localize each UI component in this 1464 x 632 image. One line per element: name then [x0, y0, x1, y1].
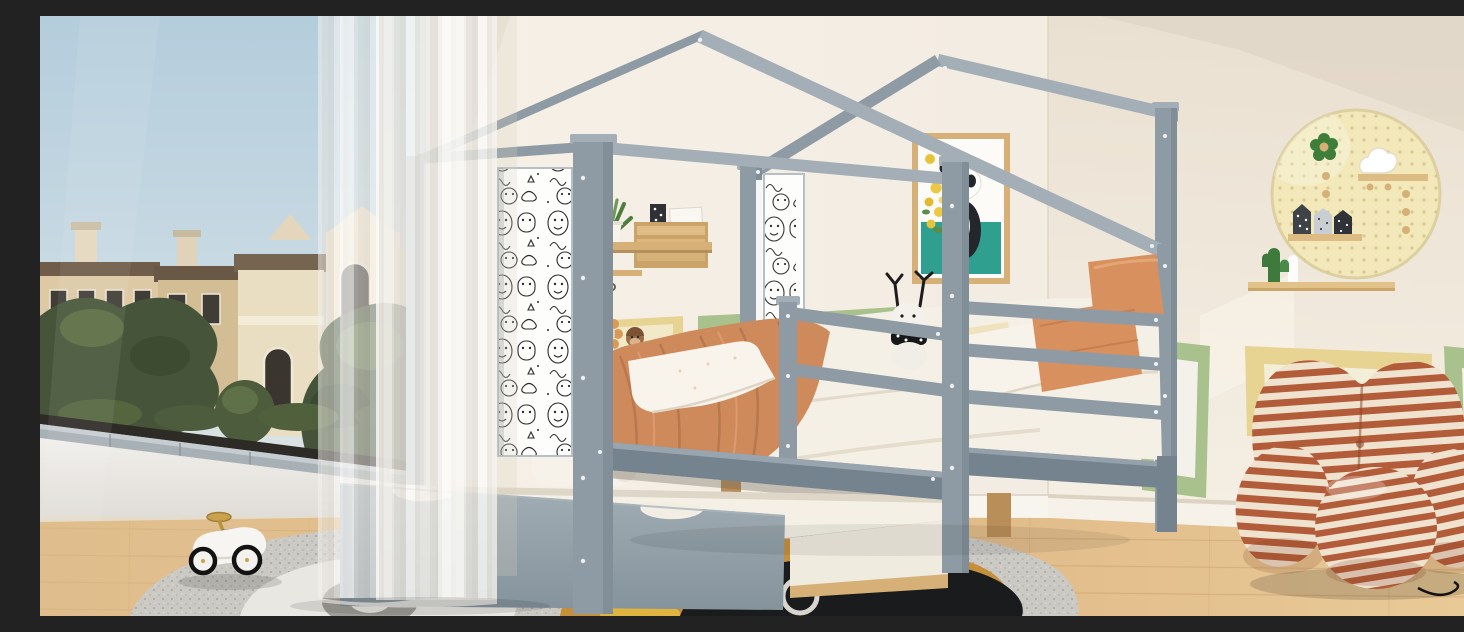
beam-end-cap: [1157, 244, 1171, 262]
chair-button: [1356, 440, 1364, 448]
curtain: [290, 16, 550, 615]
roof: [234, 254, 328, 272]
curtain-highlight: [340, 16, 354, 598]
bed-floor-shadow: [630, 524, 1130, 556]
bedroom-scene: Kids bedroom with gray wooden house-fram…: [40, 16, 1464, 616]
pegboard-shelf-lower: [1288, 234, 1362, 241]
bedroom-photo: Product photo of a gray house-shaped twi…: [40, 16, 1464, 616]
chimney-cap: [173, 230, 201, 237]
chimney: [177, 235, 197, 271]
curtain-wall-shadow: [497, 16, 517, 576]
curtain-main: [376, 16, 497, 600]
striped-chair: [1228, 360, 1464, 600]
curtain-highlight: [438, 16, 464, 600]
bed-leg-gray: [1157, 456, 1177, 532]
pegboard-shelf-upper: [1358, 174, 1428, 181]
balustrade: [238, 316, 324, 325]
roof: [154, 266, 242, 282]
toy-car-shadow: [178, 574, 282, 590]
guardrail-post: [779, 302, 797, 484]
